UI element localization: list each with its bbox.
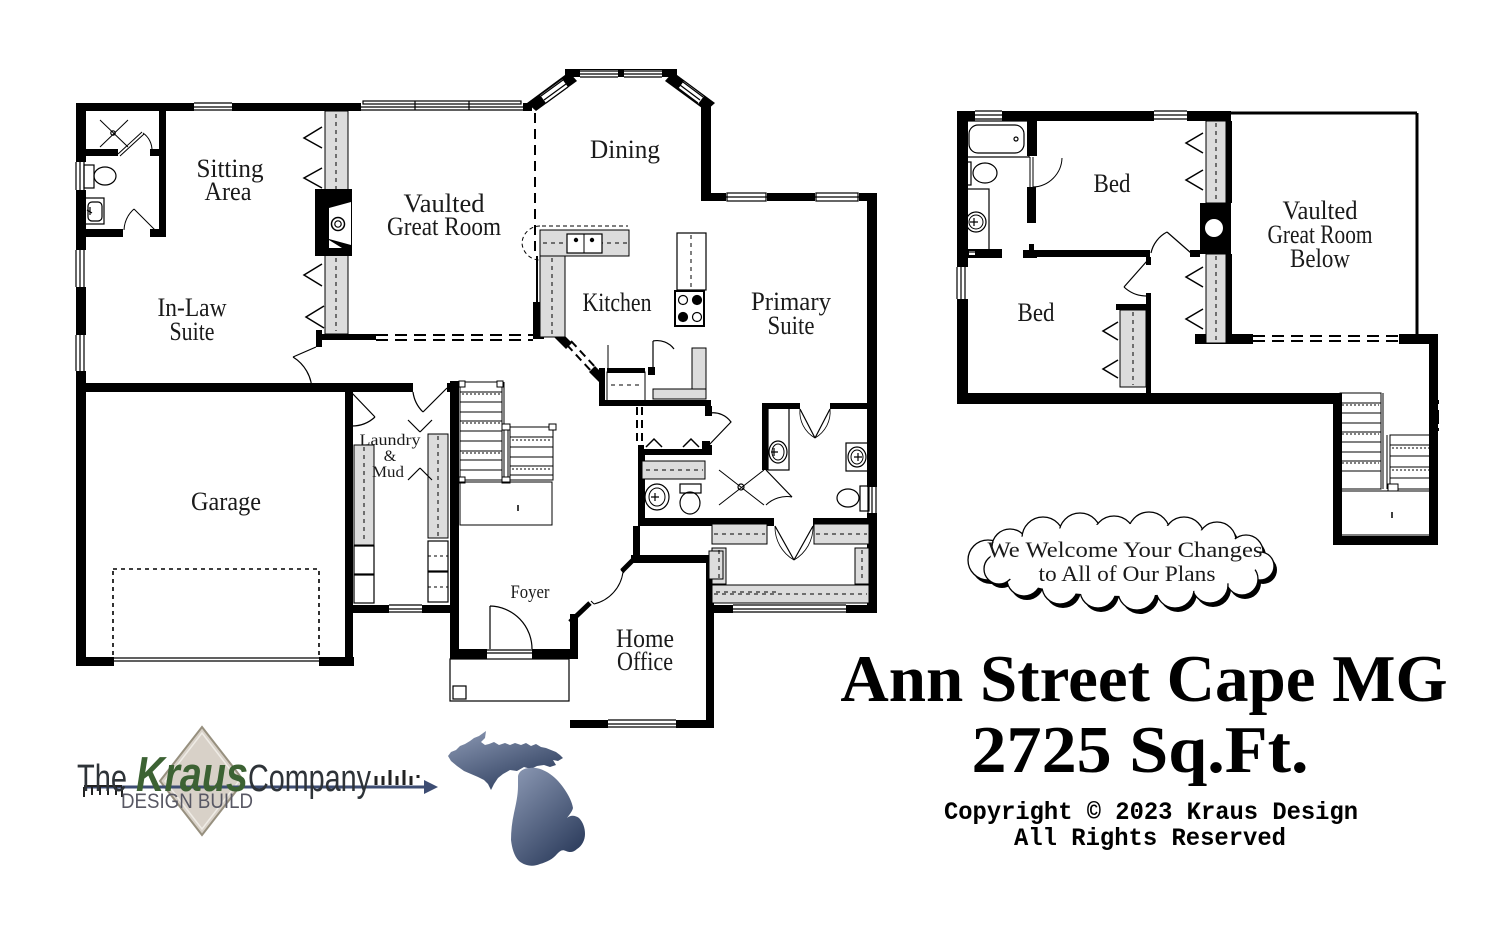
svg-text:Mud: Mud: [372, 464, 404, 481]
svg-text:Area: Area: [205, 177, 252, 206]
svg-text:Ann Street Cape MG: Ann Street Cape MG: [840, 642, 1447, 716]
svg-text:Foyer: Foyer: [511, 582, 551, 603]
svg-text:We Welcome Your Changes: We Welcome Your Changes: [988, 537, 1263, 562]
svg-text:Copyright © 2023 Kraus Design: Copyright © 2023 Kraus Design: [944, 798, 1358, 827]
svg-text:Suite: Suite: [768, 311, 815, 340]
svg-text:Company: Company: [248, 758, 371, 800]
svg-text:Suite: Suite: [170, 317, 215, 346]
svg-text:Kitchen: Kitchen: [583, 288, 652, 317]
svg-text:Bed: Bed: [1094, 169, 1131, 198]
svg-text:Dining: Dining: [590, 135, 660, 164]
svg-text:2725 Sq.Ft.: 2725 Sq.Ft.: [972, 713, 1309, 787]
svg-text:DESIGN BUILD: DESIGN BUILD: [121, 790, 253, 813]
svg-text:&: &: [384, 448, 397, 465]
svg-text:Bed: Bed: [1018, 298, 1055, 327]
svg-text:to All of Our Plans: to All of Our Plans: [1039, 561, 1216, 586]
svg-text:Laundry: Laundry: [360, 432, 421, 449]
svg-text:Office: Office: [617, 647, 673, 676]
svg-text:Below: Below: [1290, 244, 1350, 273]
svg-text:The: The: [77, 758, 127, 800]
svg-text:Garage: Garage: [191, 487, 261, 516]
svg-text:Great Room: Great Room: [387, 212, 501, 241]
svg-text:All Rights Reserved: All Rights Reserved: [1014, 824, 1286, 853]
